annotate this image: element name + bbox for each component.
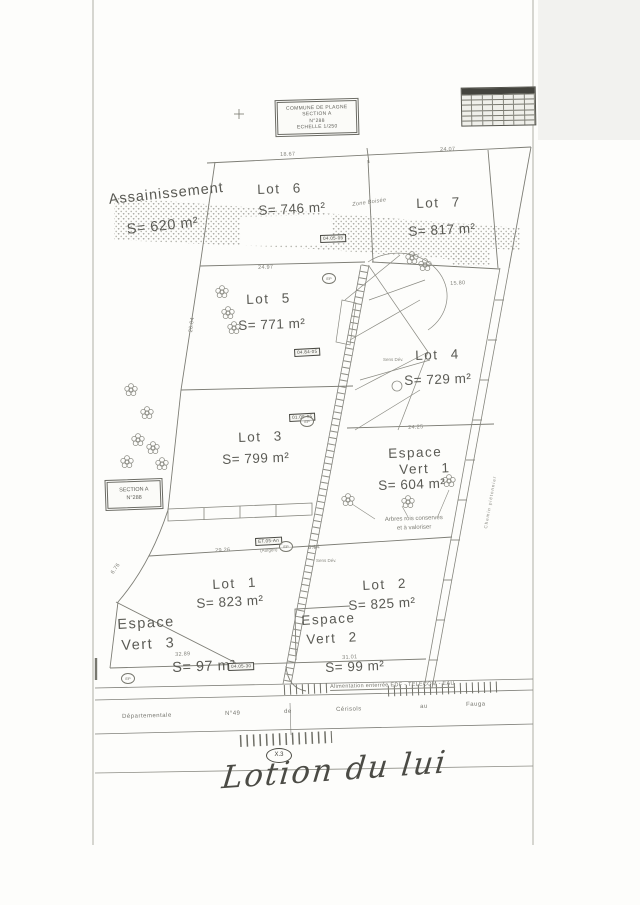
espace-vert-3-label-1: Espace	[117, 614, 175, 633]
dim-8-14: 8.14	[308, 544, 320, 551]
lot2-label: Lot 2	[362, 576, 407, 593]
road-word-cerisols: Cérisols	[336, 706, 362, 713]
sens-dev-label-2: Sens Dév.	[316, 558, 336, 563]
ep-marker-2: EP	[300, 416, 314, 427]
dim-15-80: 15.80	[450, 280, 466, 287]
espace-vert-3-label-2: Vert 3	[121, 635, 176, 654]
section-a-box: SECTION A N°288	[107, 480, 162, 509]
dim-18-67: 18.67	[280, 151, 295, 158]
lot3-label: Lot 3	[238, 428, 283, 445]
title-scale: ECHELLE 1/250	[297, 123, 338, 131]
espace-vert-2-label-1: Espace	[301, 610, 356, 628]
lot4-label: Lot 4	[415, 346, 460, 363]
dim-32-89: 32.89	[175, 651, 191, 658]
road-word-de: de	[284, 709, 292, 715]
ep-marker-4: EP	[121, 673, 135, 684]
lot3-area: S= 799 m²	[222, 450, 290, 467]
survey-triangulation	[336, 253, 447, 430]
title-block: COMMUNE DE PLAGNE SECTION A N°288 ECHELL…	[277, 100, 358, 135]
survey-badge-5: 04.05-30	[228, 662, 254, 671]
espace-vert-2-label-2: Vert 2	[306, 629, 358, 647]
lot4-area: S= 729 m²	[404, 371, 472, 388]
lot7-label: Lot 7	[416, 194, 461, 211]
lot6-label: Lot 6	[257, 180, 302, 197]
espace-vert-2-area: S= 99 m²	[325, 658, 385, 675]
legend-table	[461, 86, 537, 126]
lot5-area: S= 771 m²	[238, 316, 306, 333]
road-word-departementale: Départementale	[122, 713, 172, 720]
espace-vert-1-area: S= 604 m²	[378, 476, 446, 493]
lot5-label: Lot 5	[246, 290, 291, 307]
survey-badge-1: 04.05-05	[320, 234, 346, 243]
arbres-note: Arbres rois conservés et à valoriser	[366, 513, 463, 534]
sens-dev-label-1: Sens Dév.	[383, 357, 403, 362]
dim-29-26: 29.26	[215, 547, 231, 554]
scanned-plan-page: COMMUNE DE PLAGNE SECTION A N°288 ECHELL…	[0, 0, 640, 905]
espace-vert-1-label-1: Espace	[388, 444, 443, 461]
survey-badge-2: 04.84-05	[294, 348, 321, 357]
ep-marker-1: EP	[322, 273, 336, 284]
utility-combs	[240, 687, 497, 741]
dim-31-01: 31.01	[342, 654, 358, 661]
road-word-fauga: Fauga	[466, 701, 486, 708]
dim-24-25: 24.25	[408, 424, 424, 431]
road-word-n49: N°49	[225, 711, 241, 717]
road-word-au: au	[420, 704, 428, 710]
lot1-label: Lot 1	[212, 575, 257, 592]
dim-24-97: 24.97	[258, 264, 273, 271]
espace-vert-1-label-2: Vert 1	[399, 460, 451, 477]
dim-24-07: 24.07	[440, 146, 455, 153]
wall-row	[168, 503, 312, 521]
espace-vert-3-area: S= 97 m²	[172, 658, 236, 676]
survey-badge-4-sub: (Aufgeri)	[260, 547, 278, 553]
section-box-line2: N°288	[126, 494, 142, 502]
ep-marker-3: EP	[279, 541, 293, 552]
